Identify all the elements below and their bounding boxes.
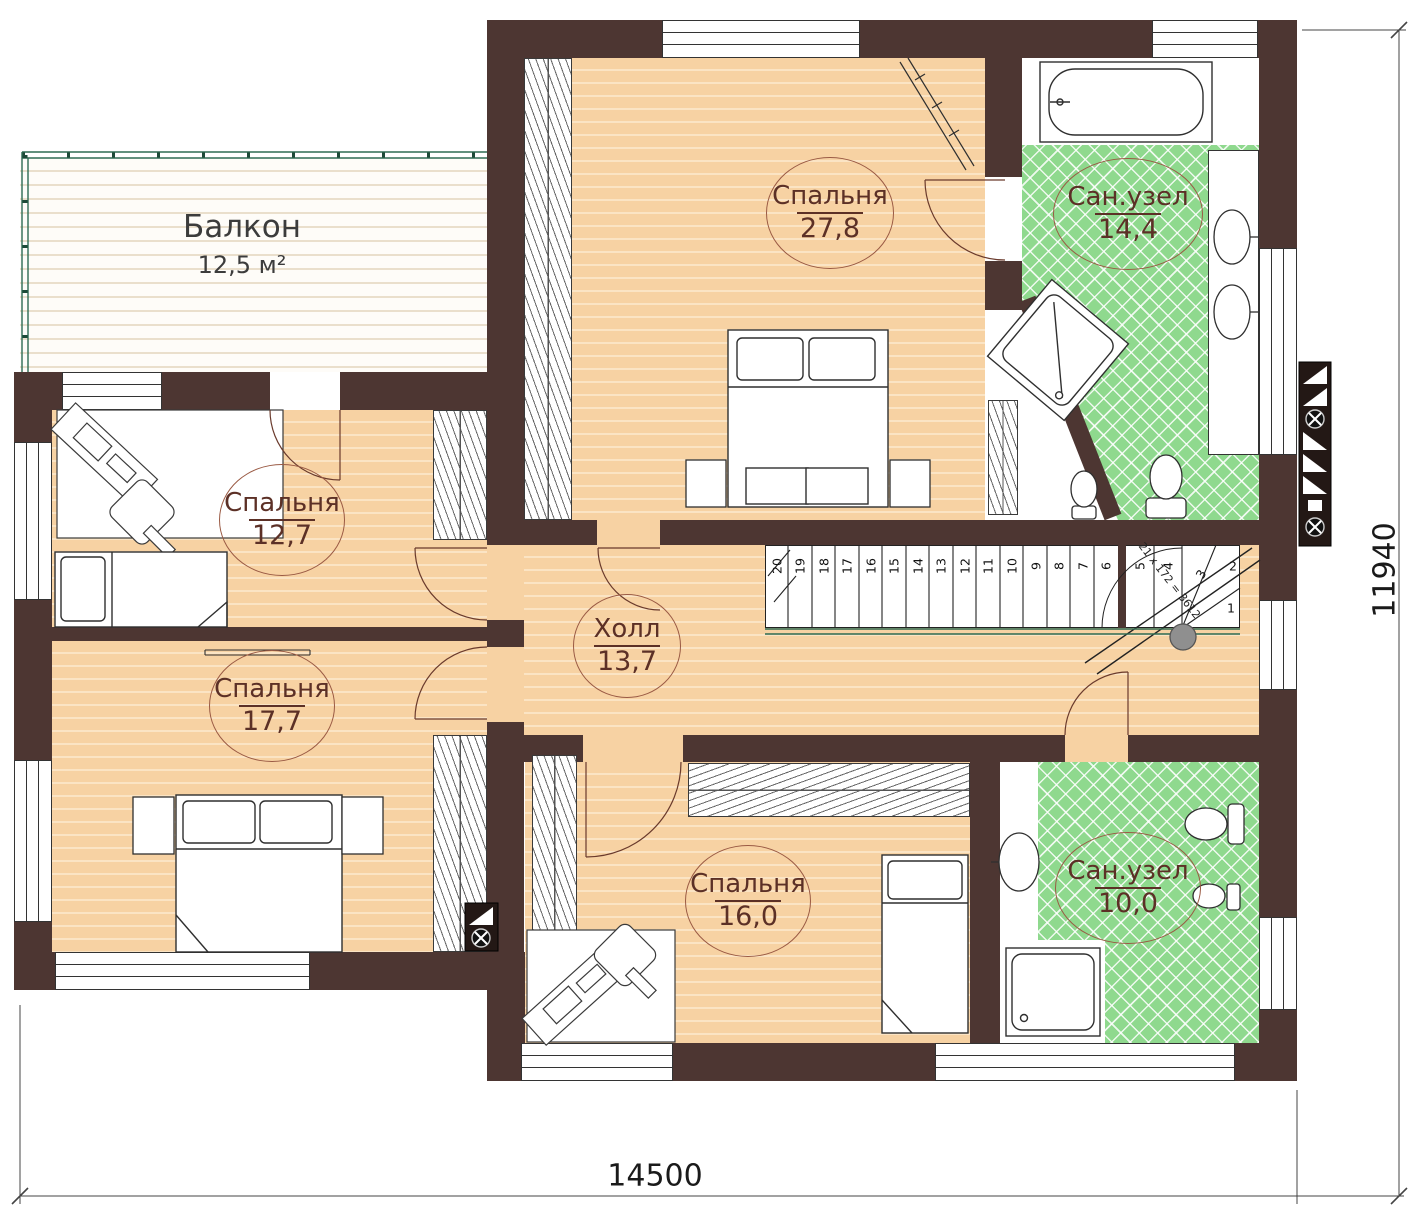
dimension-width: 14500 [607,1159,702,1194]
double-bed [728,330,888,507]
sink [1214,210,1258,339]
stair-number: 15 [887,558,902,574]
flue-block [1299,362,1331,546]
stair-number: 9 [1029,562,1044,570]
room-area: 10,0 [1098,890,1158,918]
toilet [1146,455,1186,518]
room-label-bedroom1: Спальня 27,8 [766,157,894,269]
room-name: Холл [594,616,661,643]
room-area: 13,7 [597,648,657,676]
room-area: 27,8 [800,215,860,243]
stair-number: 13 [934,558,949,574]
room-area: 12,5 м² [183,251,301,279]
stair-newel-post [1170,624,1196,650]
floor-plan: Балкон 12,5 м² Спальня 27,8 Сан.узел 14,… [0,0,1408,1224]
stair-number: 12 [958,558,973,574]
room-area: 16,0 [718,903,778,931]
stair-number: 5 [1133,562,1148,570]
room-label-bath1: Сан.узел 14,4 [1053,158,1203,270]
single-bed [55,552,227,627]
room-label-balcony: Балкон 12,5 м² [183,209,301,279]
stair-number: 14 [911,558,926,574]
stair-number: 6 [1099,562,1114,570]
bidet [1071,471,1097,519]
room-label-bedroom3: Спальня 17,7 [209,650,335,762]
shower [1006,948,1100,1036]
stair-number: 2 [1229,559,1237,574]
stair-edge-line [765,629,1240,634]
bathtub [1040,62,1212,142]
stair-number: 11 [981,558,996,574]
room-area: 14,4 [1098,216,1158,244]
stair-number: 20 [770,558,785,574]
single-bed [882,855,968,1033]
stair-number: 19 [793,558,808,574]
stair-number: 17 [840,558,855,574]
room-label-hall: Холл 13,7 [573,594,681,698]
shower [988,280,1129,421]
room-area: 17,7 [242,708,302,736]
toilet [1185,804,1244,844]
double-bed [176,795,342,952]
room-label-bedroom4: Спальня 16,0 [685,845,811,957]
stair-number: 1 [1227,601,1235,616]
room-label-bedroom2: Спальня 12,7 [219,464,345,576]
dimension-height: 11940 [1368,522,1403,617]
wall-mirror [900,58,974,170]
flue-block [465,903,498,951]
room-name: Спальня [214,676,330,703]
stair-number: 7 [1076,562,1091,570]
room-name: Спальня [772,183,888,210]
room-name: Сан.узел [1067,858,1188,885]
room-name: Балкон [183,209,301,245]
room-name: Сан.узел [1067,184,1188,211]
door-arc [270,180,1128,857]
room-label-bath2: Сан.узел 10,0 [1055,832,1201,944]
stair-number: 18 [817,558,832,574]
stair-number: 16 [864,558,879,574]
room-name: Спальня [224,490,340,517]
stair-number: 8 [1052,562,1067,570]
room-area: 12,7 [252,522,312,550]
stair-number: 10 [1005,558,1020,574]
sink [991,833,1039,891]
desk-unit [522,921,675,1045]
room-name: Спальня [690,871,806,898]
